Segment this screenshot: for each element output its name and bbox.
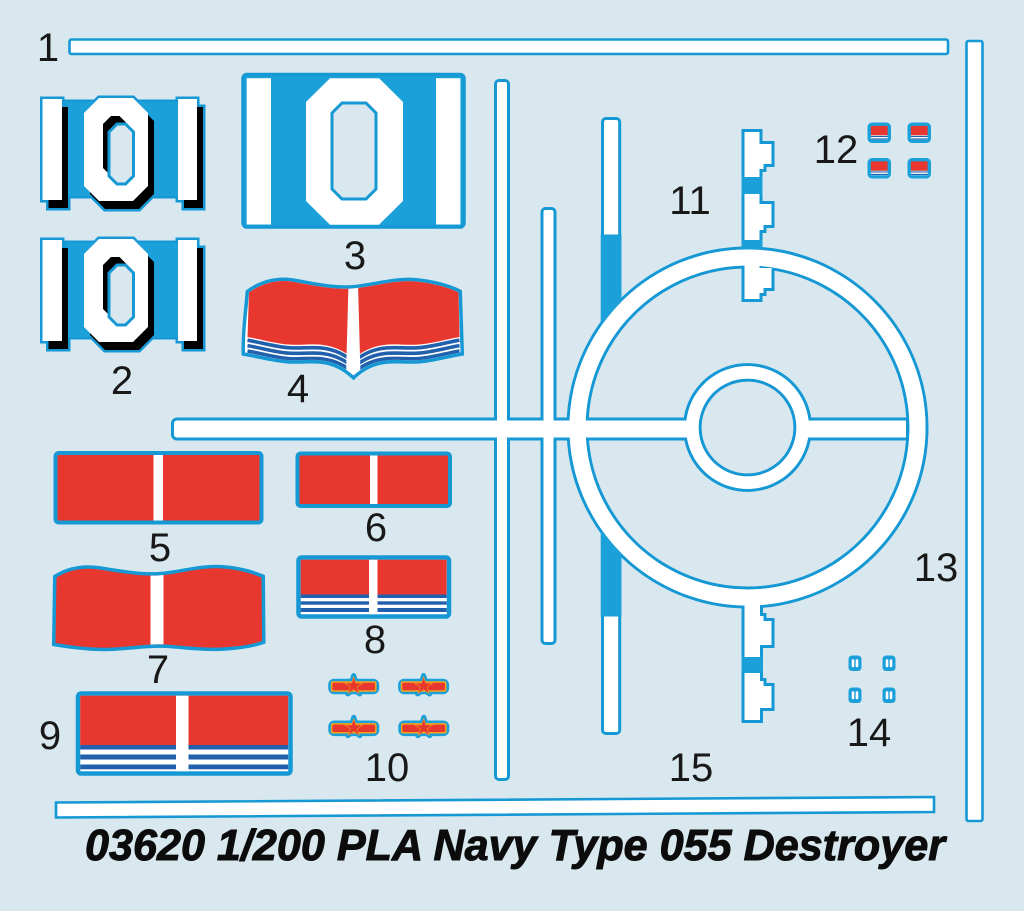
svg-text:9: 9: [39, 714, 61, 758]
svg-text:14: 14: [847, 711, 892, 755]
svg-text:8: 8: [364, 618, 386, 662]
svg-text:5: 5: [149, 526, 171, 570]
svg-text:03620 1/200 PLA Navy Type 055: 03620 1/200 PLA Navy Type 055 Destroyer: [85, 821, 948, 870]
svg-text:15: 15: [669, 746, 714, 790]
svg-text:13: 13: [914, 546, 959, 590]
svg-text:11: 11: [669, 179, 711, 223]
svg-text:3: 3: [344, 234, 366, 278]
svg-text:4: 4: [287, 367, 309, 411]
svg-text:7: 7: [147, 648, 169, 692]
svg-text:12: 12: [814, 128, 859, 172]
svg-text:10: 10: [365, 746, 410, 790]
svg-text:6: 6: [365, 506, 387, 550]
svg-text:1: 1: [37, 26, 59, 70]
svg-text:2: 2: [111, 359, 133, 403]
